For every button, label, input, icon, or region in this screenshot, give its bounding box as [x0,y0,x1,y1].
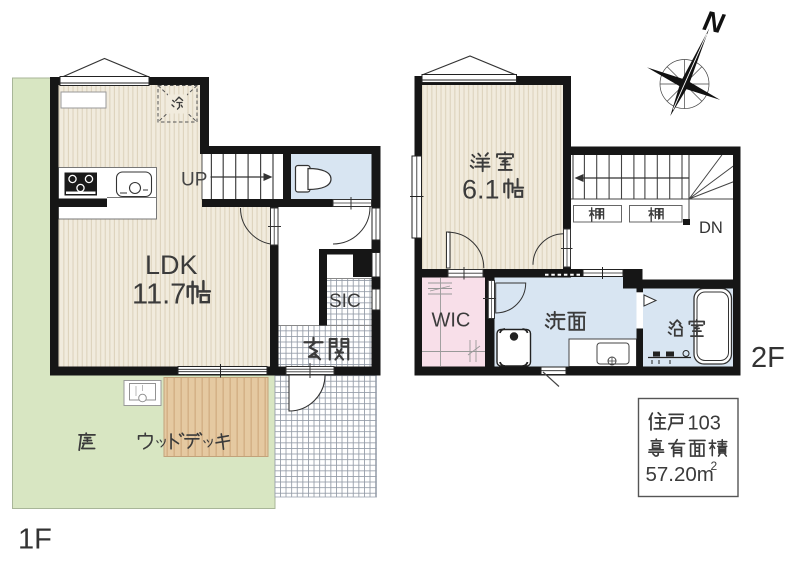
svg-text:UP: UP [181,170,207,191]
svg-text:11.7: 11.7 [132,279,186,311]
svg-text:SIC: SIC [329,291,361,312]
svg-text:57.20m: 57.20m [646,463,714,486]
svg-text:6.1: 6.1 [462,175,500,205]
svg-text:103: 103 [688,413,721,435]
svg-text:LDK: LDK [145,250,198,280]
svg-text:2F: 2F [751,342,785,374]
svg-text:1F: 1F [18,524,52,556]
svg-text:WIC: WIC [432,310,471,332]
svg-text:2: 2 [711,459,718,473]
svg-text:DN: DN [699,219,723,237]
